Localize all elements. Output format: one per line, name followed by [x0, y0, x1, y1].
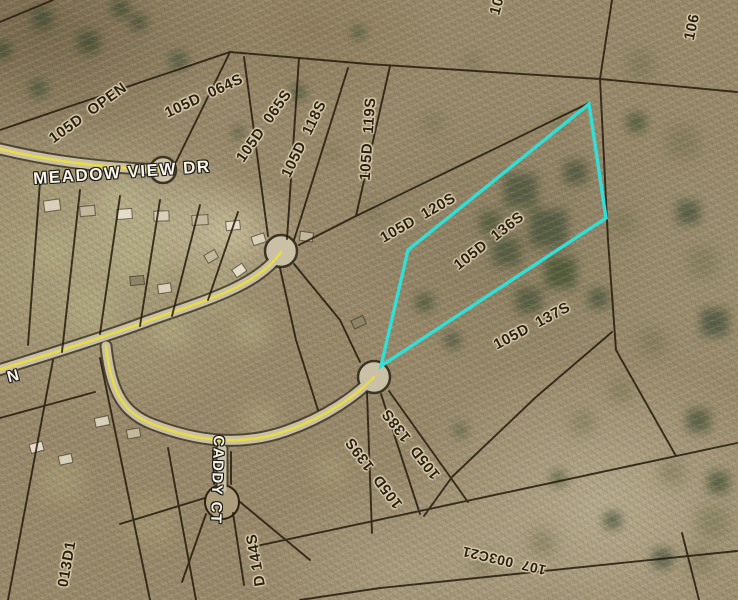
street-label-caddy-ct: CADDY CT — [207, 435, 227, 525]
aerial-parcel-map[interactable]: MEADOW VIEW DR CADDY CT N 105D OPEN 105D… — [0, 0, 738, 600]
